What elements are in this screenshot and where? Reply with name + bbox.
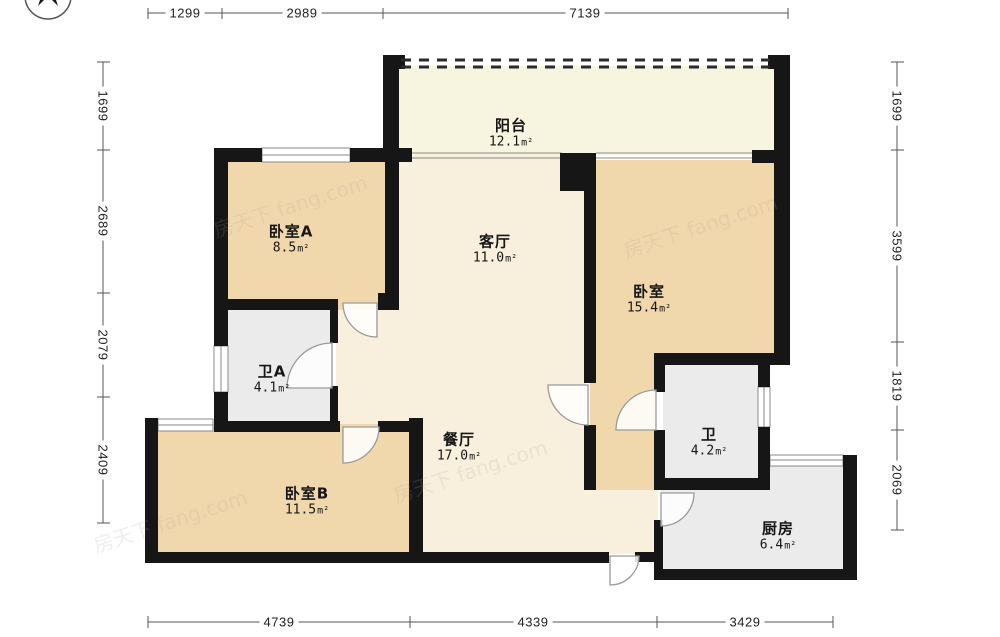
room-area: 11.0m² — [473, 252, 517, 267]
dim-bottom-1: 4339 — [514, 615, 553, 630]
window-bedroom-b-top — [158, 419, 213, 431]
room-name: 卫A — [254, 363, 291, 380]
room-area: 15.4m² — [627, 302, 671, 317]
room-name: 卧室 — [627, 283, 671, 300]
dim-left-0: 1699 — [96, 87, 111, 126]
room-label-bedroom: 卧室 15.4m² — [627, 283, 671, 316]
floor-plan-drawing — [0, 0, 1000, 637]
window-kitchen-top — [770, 455, 843, 466]
room-area: 17.0m² — [437, 450, 481, 465]
dim-top-1: 2989 — [283, 6, 322, 21]
window-bath-right — [758, 387, 770, 427]
room-area: 12.1m² — [489, 136, 533, 151]
dim-bottom-0: 4739 — [260, 615, 299, 630]
room-area: 4.1m² — [254, 382, 291, 397]
room-area: 8.5m² — [269, 242, 314, 257]
room-label-bedroom-b: 卧室B 11.5m² — [285, 485, 329, 518]
room-name: 卧室B — [285, 485, 329, 502]
window-bedroom-a-top — [262, 148, 350, 162]
dim-left-2: 2079 — [96, 326, 111, 365]
dim-left-3: 2409 — [96, 441, 111, 480]
north-indicator-icon — [25, 0, 71, 19]
room-name: 厨房 — [760, 520, 797, 537]
room-area: 6.4m² — [760, 539, 797, 554]
dim-right-1: 3599 — [890, 227, 905, 266]
balcony-railing — [401, 60, 770, 67]
floor-plan: 房天下 fang.com 房天下 fang.com 房天下 fang.com 房… — [0, 0, 1000, 637]
door-entry — [610, 556, 639, 585]
dim-left-1: 2689 — [96, 202, 111, 241]
dim-bottom-2: 3429 — [726, 615, 765, 630]
room-name: 阳台 — [489, 117, 533, 134]
room-name: 餐厅 — [437, 431, 481, 448]
balcony-floor — [397, 66, 776, 155]
dim-right-2: 1819 — [890, 367, 905, 406]
room-label-balcony: 阳台 12.1m² — [489, 117, 533, 150]
room-area: 11.5m² — [285, 504, 329, 519]
room-label-bath: 卫 4.2m² — [691, 426, 728, 459]
dim-top-2: 7139 — [566, 6, 605, 21]
room-label-bedroom-a: 卧室A 8.5m² — [269, 223, 314, 256]
entry-floor — [586, 490, 658, 554]
bedroom-floor — [590, 160, 776, 360]
room-name: 卫 — [691, 426, 728, 443]
room-name: 卧室A — [269, 223, 314, 240]
room-label-kitchen: 厨房 6.4m² — [760, 520, 797, 553]
room-label-living: 客厅 11.0m² — [473, 233, 517, 266]
window-bath-a-left — [214, 346, 228, 392]
room-area: 4.2m² — [691, 445, 728, 460]
room-label-dining: 餐厅 17.0m² — [437, 431, 481, 464]
dim-right-3: 2069 — [890, 461, 905, 500]
dim-right-0: 1699 — [890, 87, 905, 126]
dim-top-0: 1299 — [166, 6, 205, 21]
room-label-bath-a: 卫A 4.1m² — [254, 363, 291, 396]
room-name: 客厅 — [473, 233, 517, 250]
